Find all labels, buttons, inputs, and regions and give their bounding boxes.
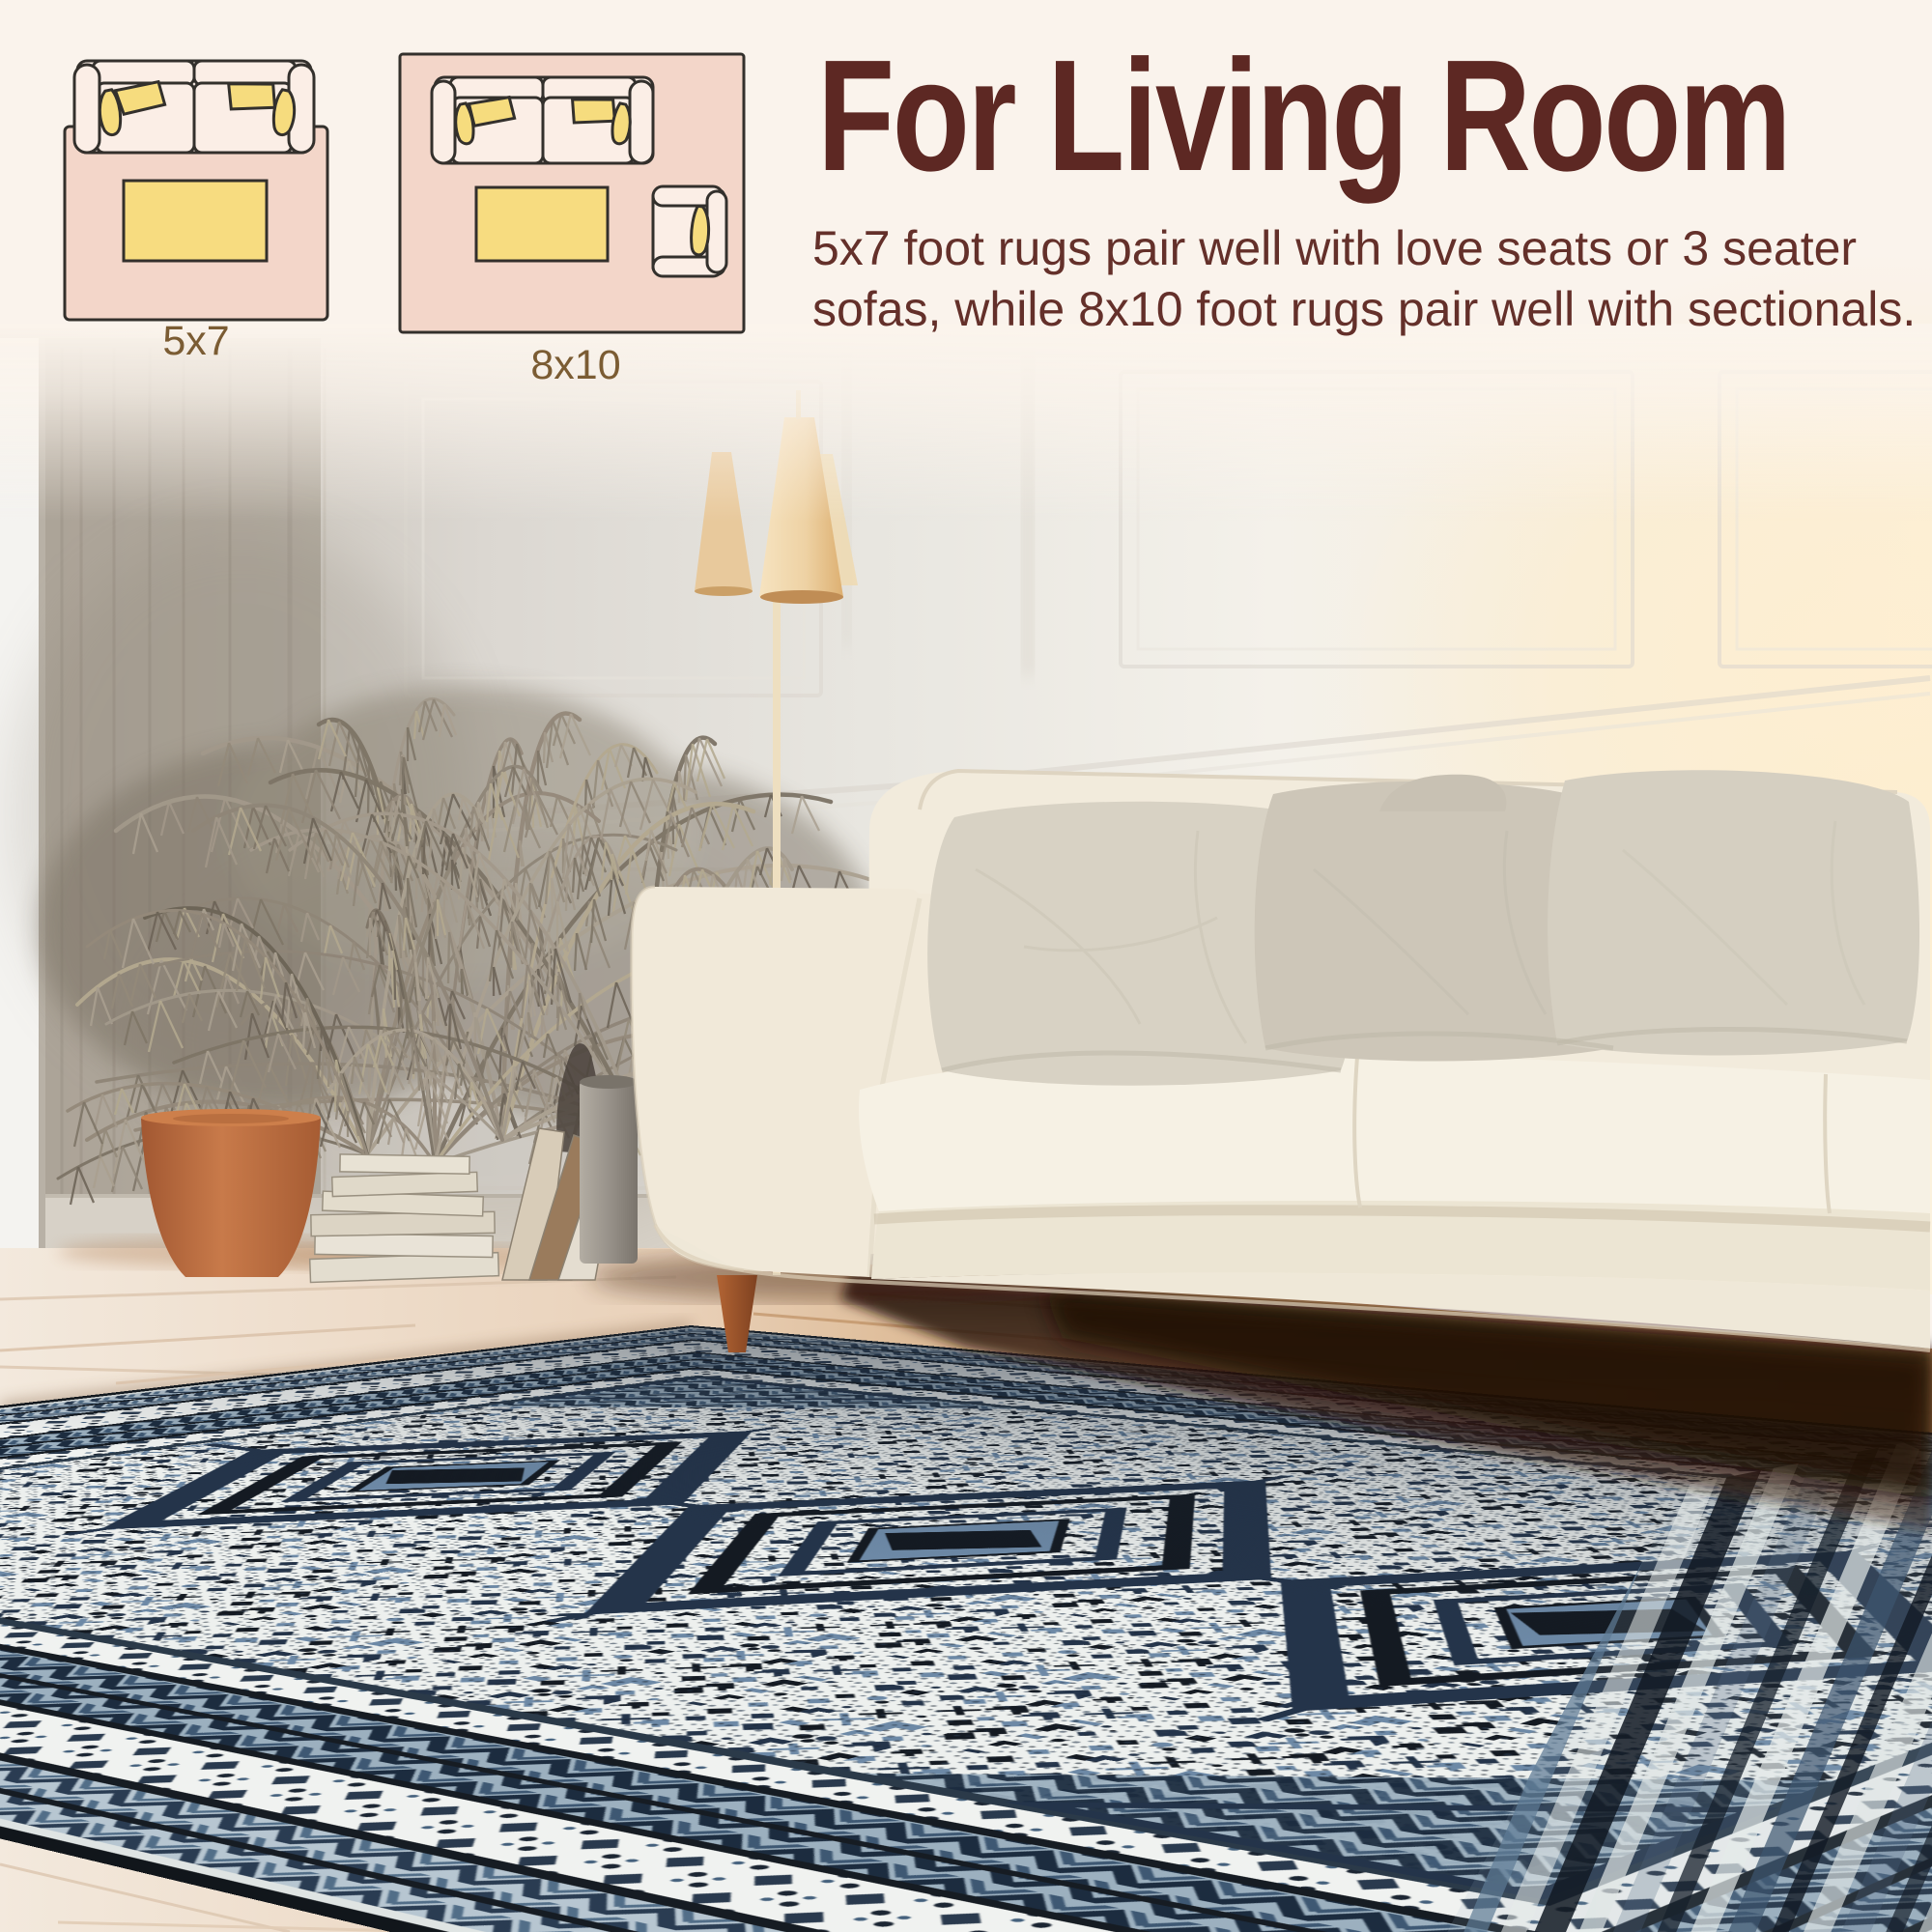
svg-text:8x10: 8x10 — [530, 342, 620, 388]
